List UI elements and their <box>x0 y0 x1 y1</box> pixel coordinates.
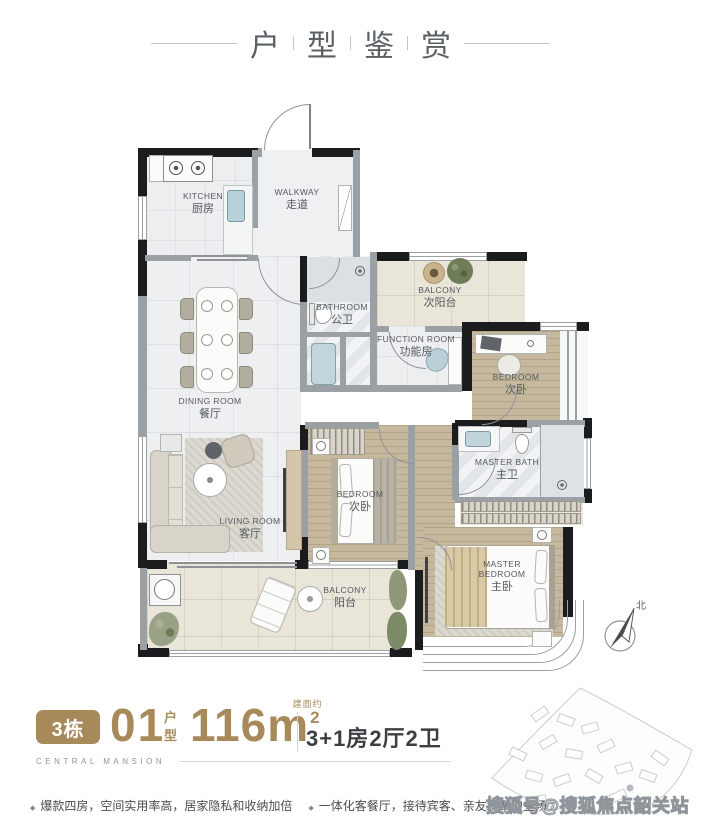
building-badge: 3栋 <box>36 710 100 744</box>
pouf <box>205 442 222 459</box>
dining-chair <box>180 366 194 388</box>
wall-segment <box>370 252 377 392</box>
window-mullion <box>567 331 569 425</box>
title-char: 型 <box>307 21 337 65</box>
wall-segment <box>145 255 191 261</box>
pillow <box>534 588 548 623</box>
closet-row <box>461 501 581 512</box>
compass-icon: 北 <box>592 596 652 660</box>
page: 户 型 鉴 赏 <box>0 0 701 822</box>
title-divider <box>350 36 351 50</box>
sliding-door <box>169 562 297 564</box>
site-plan-marker <box>627 785 634 792</box>
plant <box>389 570 407 610</box>
diamond-bullet-icon: ◆ <box>30 805 35 812</box>
wall-segment <box>138 148 147 196</box>
lamp <box>316 441 326 451</box>
room-label-bathroom: BATHROOM公卫 <box>316 303 368 326</box>
room-label-bedroom2: BEDROOM次卧 <box>493 373 540 396</box>
brand-name: CENTRAL MANSION <box>36 757 165 766</box>
unit-type-label: 户型 <box>164 709 179 744</box>
dining-chair <box>239 366 253 388</box>
room-label-balcony: BALCONY阳台 <box>323 586 366 609</box>
compass-north-label: 北 <box>636 600 646 612</box>
room-label-function-room: FUNCTION ROOM功能房 <box>377 335 455 358</box>
place-setting <box>201 300 213 312</box>
window <box>540 322 577 331</box>
tv <box>283 468 286 532</box>
wall-segment <box>353 150 360 260</box>
title-divider <box>293 36 294 50</box>
window <box>138 436 147 523</box>
brand-row: CENTRAL MANSION <box>36 757 451 766</box>
wall-segment <box>577 322 589 331</box>
kitchen-sink <box>227 190 245 222</box>
wall-segment <box>415 570 423 650</box>
wall-segment <box>375 326 389 332</box>
title-rule-right <box>464 43 550 44</box>
wall-segment <box>375 252 409 261</box>
place-setting <box>221 300 233 312</box>
title-divider <box>407 36 408 50</box>
sliding-door <box>197 259 247 261</box>
dining-chair <box>239 298 253 320</box>
floorplan: KITCHEN厨房 WALKWAY走道 BATHROOM公卫 BALCONY次阳… <box>135 100 595 680</box>
headboard <box>549 545 555 629</box>
unit-number: 01 <box>110 698 165 752</box>
title-char: 鉴 <box>364 21 394 65</box>
wall-segment <box>138 296 147 436</box>
shower-head <box>557 480 567 490</box>
page-title: 户 型 鉴 赏 <box>0 20 701 66</box>
sohu-watermark: 搜狐号@搜狐焦点韶关站 <box>486 792 689 818</box>
brand-rule <box>179 761 451 762</box>
entry-door-arc <box>264 104 310 150</box>
wall-segment <box>300 302 307 392</box>
sliding-door <box>177 566 297 568</box>
wall-segment <box>425 326 462 332</box>
wall-segment <box>452 445 459 500</box>
wall-segment <box>340 337 346 392</box>
room-label-bedroom1: BEDROOM次卧 <box>337 490 384 513</box>
dining-chair <box>180 332 194 354</box>
dining-chair <box>239 332 253 354</box>
dining-chair <box>180 298 194 320</box>
wall-segment <box>300 385 462 392</box>
diamond-bullet-icon: ◆ <box>308 805 313 812</box>
balcony-railing <box>169 650 390 657</box>
place-setting <box>201 334 213 346</box>
window-mullion <box>575 331 577 425</box>
burner <box>191 161 205 175</box>
side-table <box>160 434 182 452</box>
feature-list: ◆爆款四房，空间实用率高，居家隐私和收纳加倍 ◆一体化客餐厅，接待宾客、亲友欢聚… <box>30 797 547 814</box>
potted-plant <box>423 262 445 284</box>
mug <box>527 340 534 347</box>
room-label-master-bath: MASTER BATH主卫 <box>475 458 539 481</box>
area-value: 116m <box>190 699 309 751</box>
wall-segment <box>462 322 540 331</box>
wall-segment <box>145 648 169 657</box>
balcony-table-dot <box>307 596 313 602</box>
window <box>409 252 487 261</box>
bedroom2-baywindow <box>560 331 588 425</box>
coffee-table-dot <box>207 477 213 483</box>
bath-sink <box>465 431 491 447</box>
wall-segment <box>487 252 527 261</box>
plant <box>387 612 407 650</box>
wall-segment <box>258 148 262 157</box>
washer-drum <box>154 579 175 600</box>
window <box>583 438 591 489</box>
unit-area: 建面约116m2 <box>190 698 319 752</box>
wall-segment <box>307 332 370 337</box>
place-setting <box>201 368 213 380</box>
closet-row <box>461 513 581 524</box>
wall-segment <box>145 560 167 569</box>
place-setting <box>221 368 233 380</box>
title-char: 户 <box>250 21 280 65</box>
nightstand <box>532 631 552 647</box>
wall-segment <box>295 560 309 569</box>
wall-segment <box>462 331 472 391</box>
lamp <box>316 550 326 560</box>
toilet-tank <box>512 427 532 433</box>
sofa-chaise <box>150 525 230 553</box>
room-label-kitchen: KITCHEN厨房 <box>183 192 223 215</box>
wall-segment <box>247 255 258 261</box>
room-label-living: LIVING ROOM客厅 <box>219 517 280 540</box>
place-setting <box>221 334 233 346</box>
tv-cabinet <box>286 450 302 550</box>
vanity-sink <box>311 343 336 385</box>
room-label-master-bedroom: MASTER BEDROOM主卧 <box>470 560 534 593</box>
burner <box>169 161 183 175</box>
pillow <box>534 550 548 585</box>
title-rule-left <box>151 43 237 44</box>
shower-head <box>355 266 365 276</box>
title-char: 赏 <box>421 21 451 65</box>
leafy-plant <box>447 258 473 284</box>
layout-summary: 3+1房2厅2卫 <box>306 721 442 753</box>
feature-text: 爆款四房，空间实用率高，居家隐私和收纳加倍 <box>40 799 292 813</box>
wall-segment <box>138 240 147 298</box>
shoe-cabinet <box>338 185 352 231</box>
wall-segment <box>140 568 147 650</box>
feature-item: ◆爆款四房，空间实用率高，居家隐私和收纳加倍 <box>30 797 292 814</box>
window <box>138 196 147 240</box>
lamp <box>537 530 547 540</box>
room-label-balcony2: BALCONY次阳台 <box>418 286 461 309</box>
info-divider <box>297 712 298 752</box>
laptop <box>480 336 502 352</box>
room-label-dining: DINING ROOM餐厅 <box>179 397 242 420</box>
room-label-walkway: WALKWAY走道 <box>275 188 320 211</box>
sliding-door <box>191 255 247 257</box>
